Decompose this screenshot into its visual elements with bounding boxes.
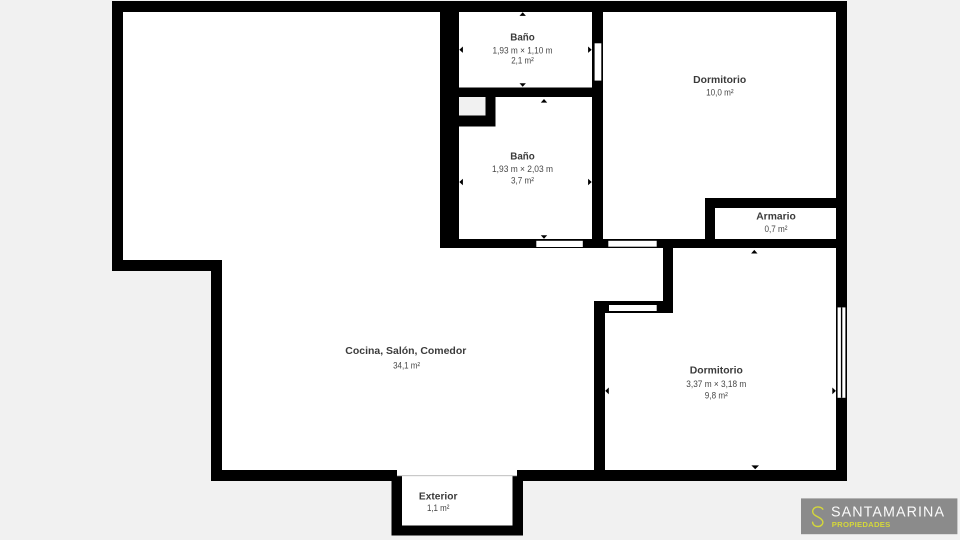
svg-text:34,1 m²: 34,1 m² [393, 360, 420, 371]
svg-text:3,7 m²: 3,7 m² [511, 175, 534, 186]
svg-text:Baño: Baño [510, 33, 535, 44]
svg-text:1,93 m × 2,03 m: 1,93 m × 2,03 m [492, 163, 553, 174]
svg-text:9,8 m²: 9,8 m² [705, 389, 728, 400]
svg-text:SANTAMARINA: SANTAMARINA [831, 505, 944, 521]
svg-text:1,1 m²: 1,1 m² [427, 502, 450, 513]
svg-text:0,7 m²: 0,7 m² [765, 223, 788, 234]
svg-text:Dormitorio: Dormitorio [693, 75, 746, 86]
svg-text:Baño: Baño [510, 151, 535, 162]
svg-text:2,1 m²: 2,1 m² [511, 55, 534, 66]
svg-text:Cocina, Salón, Comedor: Cocina, Salón, Comedor [345, 346, 466, 357]
svg-text:10,0 m²: 10,0 m² [706, 87, 734, 98]
svg-text:Armario: Armario [756, 212, 796, 223]
svg-text:PROPIEDADES: PROPIEDADES [832, 520, 891, 529]
svg-text:3,37 m × 3,18 m: 3,37 m × 3,18 m [686, 378, 746, 389]
svg-text:Dormitorio: Dormitorio [690, 366, 743, 377]
svg-text:Exterior: Exterior [419, 492, 458, 503]
